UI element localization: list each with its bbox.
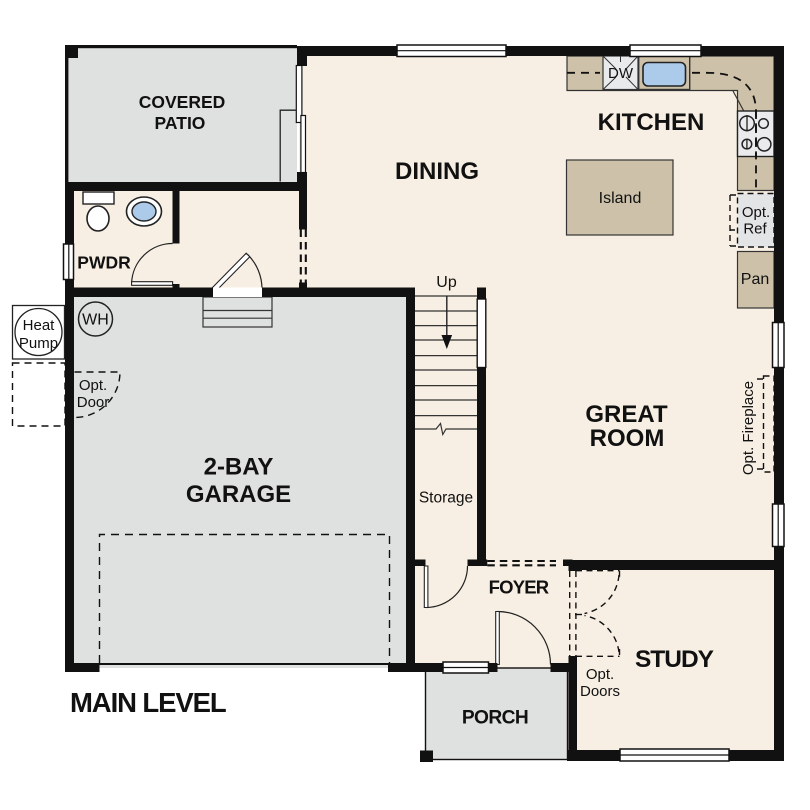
svg-text:MAIN LEVEL: MAIN LEVEL (70, 687, 226, 718)
svg-text:GARAGE: GARAGE (186, 481, 291, 508)
svg-text:Up: Up (436, 274, 457, 291)
svg-text:ROOM: ROOM (590, 425, 665, 452)
svg-text:FOYER: FOYER (489, 577, 549, 598)
svg-text:DINING: DINING (395, 158, 479, 185)
svg-text:DW: DW (608, 65, 634, 82)
svg-text:Opt. Fireplace: Opt. Fireplace (740, 381, 757, 475)
svg-text:Opt.: Opt. (79, 377, 107, 394)
svg-text:Ref: Ref (743, 221, 767, 238)
svg-text:KITCHEN: KITCHEN (598, 109, 705, 136)
svg-text:PWDR: PWDR (77, 253, 131, 273)
svg-text:COVERED: COVERED (139, 92, 226, 112)
svg-text:Opt.: Opt. (586, 666, 614, 683)
svg-text:Storage: Storage (419, 490, 473, 507)
svg-text:Opt.: Opt. (742, 204, 770, 221)
svg-text:Doors: Doors (580, 683, 620, 700)
svg-text:Pan: Pan (741, 271, 769, 288)
svg-text:Pump: Pump (19, 335, 58, 352)
svg-text:PORCH: PORCH (462, 708, 528, 729)
svg-text:STUDY: STUDY (635, 646, 714, 673)
svg-text:Door: Door (77, 394, 110, 411)
svg-text:WH: WH (82, 312, 109, 329)
svg-text:2-BAY: 2-BAY (204, 454, 274, 481)
svg-text:GREAT: GREAT (585, 401, 668, 428)
svg-text:Heat: Heat (23, 317, 56, 334)
svg-text:PATIO: PATIO (155, 113, 206, 133)
svg-text:Island: Island (599, 190, 642, 207)
